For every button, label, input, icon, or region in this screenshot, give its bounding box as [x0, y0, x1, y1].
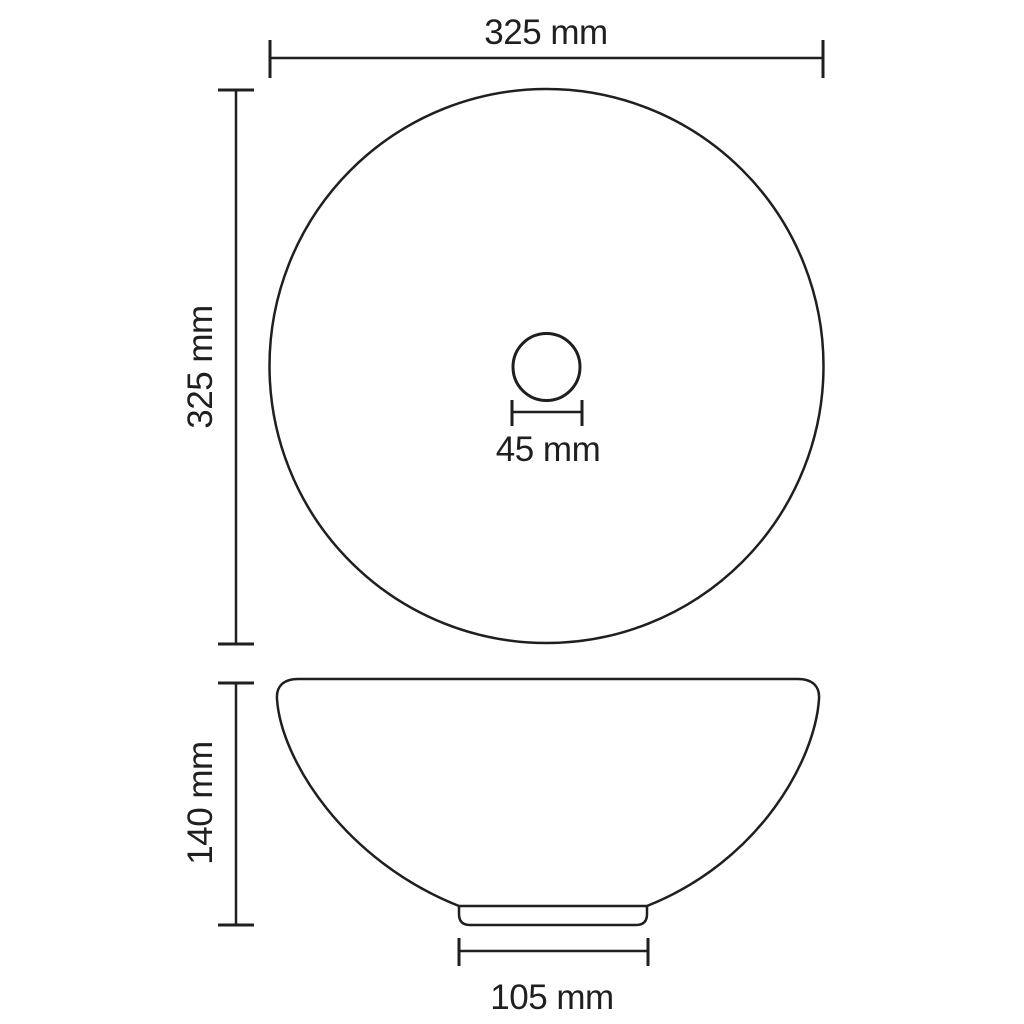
base-width-label: 105 mm [490, 978, 613, 1017]
canvas-background [0, 0, 1024, 1024]
sink-dimension-diagram: 325 mm 325 mm 45 mm 140 mm 105 mm [0, 0, 1024, 1024]
drain-size-label: 45 mm [496, 430, 600, 469]
side-height-label: 140 mm [181, 741, 220, 864]
diagram-page: 325 mm 325 mm 45 mm 140 mm 105 mm [0, 0, 1024, 1024]
top-width-label: 325 mm [484, 13, 607, 52]
left-height-label: 325 mm [181, 305, 220, 428]
